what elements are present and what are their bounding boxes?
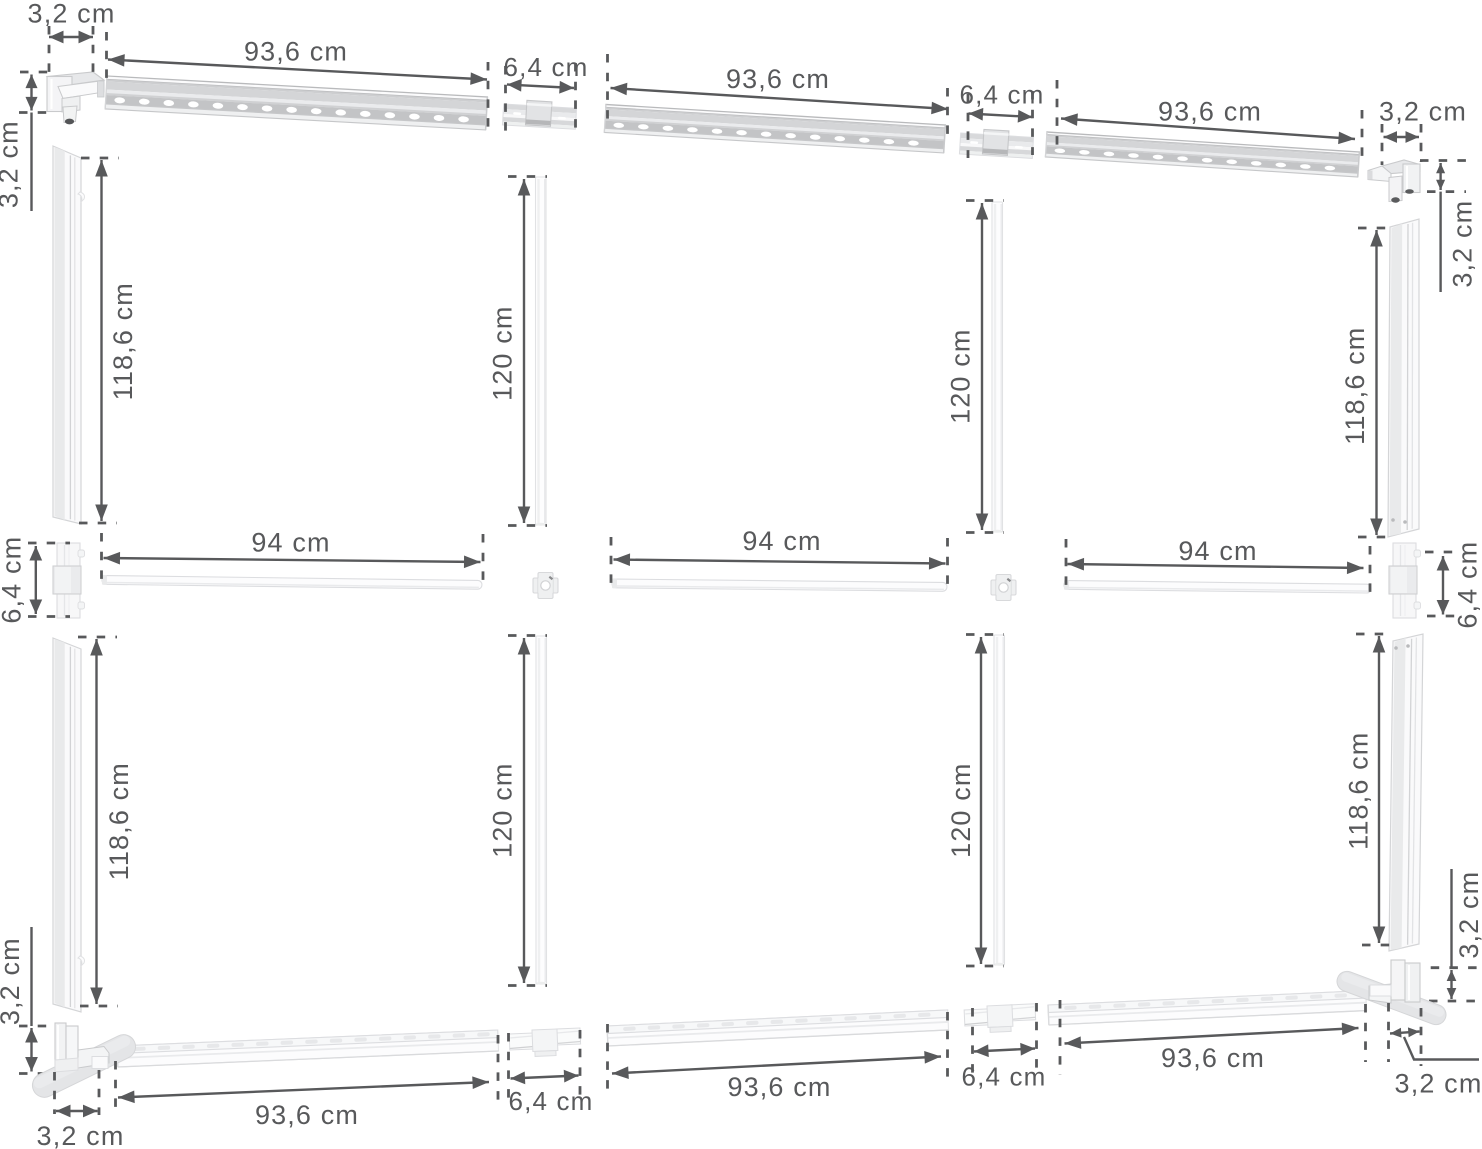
svg-text:3,2 cm: 3,2 cm [1395, 1068, 1482, 1098]
svg-text:6,4 cm: 6,4 cm [1453, 541, 1482, 629]
svg-text:93,6 cm: 93,6 cm [1161, 1043, 1265, 1073]
svg-text:118,6 cm: 118,6 cm [104, 762, 134, 880]
svg-text:93,6 cm: 93,6 cm [726, 64, 830, 94]
svg-text:3,2 cm: 3,2 cm [28, 0, 116, 28]
svg-text:6,4 cm: 6,4 cm [0, 536, 27, 624]
svg-text:3,2 cm: 3,2 cm [1454, 871, 1482, 959]
svg-text:6,4 cm: 6,4 cm [962, 1062, 1047, 1092]
svg-text:118,6 cm: 118,6 cm [108, 282, 138, 400]
svg-text:120 cm: 120 cm [946, 328, 976, 423]
svg-text:94 cm: 94 cm [1178, 536, 1257, 566]
svg-text:118,6 cm: 118,6 cm [1344, 732, 1374, 850]
svg-text:93,6 cm: 93,6 cm [727, 1072, 831, 1102]
svg-text:120 cm: 120 cm [488, 762, 518, 857]
svg-text:3,2 cm: 3,2 cm [37, 1121, 125, 1149]
svg-text:118,6 cm: 118,6 cm [1340, 327, 1370, 445]
svg-text:3,2 cm: 3,2 cm [0, 120, 24, 208]
svg-text:120 cm: 120 cm [488, 305, 518, 400]
svg-text:3,2 cm: 3,2 cm [1379, 96, 1467, 126]
svg-text:3,2 cm: 3,2 cm [0, 937, 25, 1025]
svg-text:94 cm: 94 cm [742, 526, 821, 556]
svg-text:93,6 cm: 93,6 cm [255, 1100, 359, 1130]
svg-text:94 cm: 94 cm [251, 527, 330, 557]
svg-text:93,6 cm: 93,6 cm [1158, 96, 1262, 126]
svg-text:120 cm: 120 cm [946, 762, 976, 857]
svg-text:93,6 cm: 93,6 cm [244, 36, 348, 66]
svg-text:3,2 cm: 3,2 cm [1448, 200, 1478, 288]
